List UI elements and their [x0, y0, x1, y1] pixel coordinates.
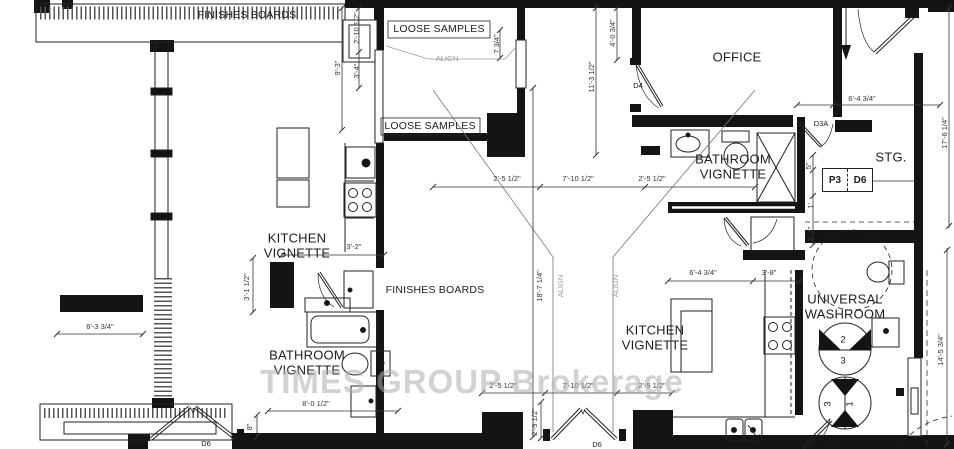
- sink-washroom: [872, 318, 899, 347]
- sink-left: [346, 147, 375, 178]
- fridge-left: [277, 128, 309, 207]
- dim-2-5-half-b: 2'-5 1/2": [638, 175, 665, 183]
- dim-7-3q: 7 3/4": [493, 34, 501, 53]
- door-bathroom-left: [318, 272, 343, 308]
- stove-right: [764, 317, 795, 354]
- dim-6-4-3q-top: 6'-4 3/4": [848, 95, 875, 103]
- label-office: OFFICE: [713, 51, 762, 66]
- door-tag-d4: D4: [633, 82, 643, 90]
- align-note-left: ALIGN: [557, 275, 565, 298]
- dim-2-5-half-a: 2'-5 1/2": [493, 175, 520, 183]
- window-wall-left: [155, 42, 168, 278]
- turning-number-1: 1: [846, 401, 857, 406]
- dim-14-5-3q: 14'-5 3/4": [937, 334, 945, 366]
- dim-9-3: 9'-3": [334, 61, 342, 76]
- dim-8in: 8": [246, 424, 254, 431]
- brokerage-watermark: TIMES GROUP Brokerage: [260, 363, 684, 401]
- dim-11-3-half: 11'-3 1/2": [588, 61, 596, 92]
- stove-left: [344, 183, 376, 217]
- align-note-right: ALIGN: [612, 275, 620, 298]
- label-loose-samples-upper: LOOSE SAMPLES: [393, 24, 484, 36]
- door-tag-d6-center: D6: [592, 441, 602, 449]
- dim-6-4-3q-bot: 6'-4 3/4": [689, 269, 716, 277]
- entry-arrow-icon: [841, 45, 851, 60]
- window-right-lower: [908, 358, 921, 436]
- dim-3-1-half: 3'-1 1/2": [243, 273, 251, 300]
- dim-6-3-3q: 6'-3 3/4": [86, 323, 113, 331]
- door-tag-d6-left: D6: [201, 440, 211, 448]
- toilet-washroom: [867, 261, 904, 284]
- dim-5in: 5": [805, 163, 813, 170]
- label-loose-samples-lower: LOOSE SAMPLES: [384, 121, 475, 133]
- dim-1ft: 1': [807, 203, 815, 209]
- turning-number-3-upper: 3: [840, 357, 845, 368]
- dim-2-9-half: 2'-9 1/2": [531, 408, 539, 435]
- dim-4-0-3q: 4'-0 3/4": [609, 19, 617, 46]
- cabinet-left: [344, 271, 373, 308]
- counter-left: [345, 143, 374, 252]
- turning-number-3-lower: 3: [824, 401, 835, 406]
- dim-3-4: 3'-4": [353, 64, 361, 79]
- dim-3-4-right: 3'-4": [807, 227, 815, 242]
- floorplan-canvas: FINISHES BOARDS LOOSE SAMPLES LOOSE SAMP…: [0, 0, 954, 449]
- dim-8-0-half: 8'-0 1/2": [302, 400, 329, 408]
- label-bathroom-vignette-right: BATHROOM VIGNETTE: [695, 152, 771, 181]
- turning-number-2: 2: [840, 336, 845, 347]
- bay-window-top-left: [36, 4, 345, 42]
- dim-18-7-q: 18'-7 1/4": [536, 270, 544, 302]
- double-door-d6-center: [551, 408, 617, 440]
- door-tag-d3a: D3A: [814, 120, 829, 128]
- dim-2-10-half: 2'-10 1/2": [353, 12, 361, 44]
- dim-3-2: 3'-2": [347, 243, 362, 251]
- dim-3-8: 3'-8": [762, 269, 777, 277]
- label-finishes-boards-center: FINISHES BOARDS: [386, 285, 485, 297]
- vanity-bathroom-left: [305, 298, 350, 312]
- dim-17-6-q: 17'-6 1/4": [941, 117, 949, 149]
- p3-d6-schedule-tag: P3 D6: [822, 168, 873, 192]
- bathtub-left: [307, 312, 377, 347]
- label-universal-washroom: UNIVERSAL WASHROOM: [805, 292, 886, 321]
- label-kitchen-vignette-left: KITCHEN VIGNETTE: [264, 231, 331, 260]
- align-note-top: ALIGN: [436, 55, 459, 63]
- label-finishes-boards-top: FINISHES BOARDS: [198, 10, 297, 22]
- tag-d6: D6: [847, 169, 872, 191]
- counter-right: [672, 270, 795, 417]
- label-kitchen-vignette-right: KITCHEN VIGNETTE: [622, 323, 689, 352]
- door-shower-room: [724, 217, 749, 246]
- dim-7-10-half-a: 7'-10 1/2": [562, 175, 594, 183]
- tag-p3: P3: [823, 169, 847, 191]
- label-storage: STG.: [875, 151, 906, 166]
- door-tag-d3: D3: [828, 439, 838, 447]
- shower-stall: [751, 217, 794, 251]
